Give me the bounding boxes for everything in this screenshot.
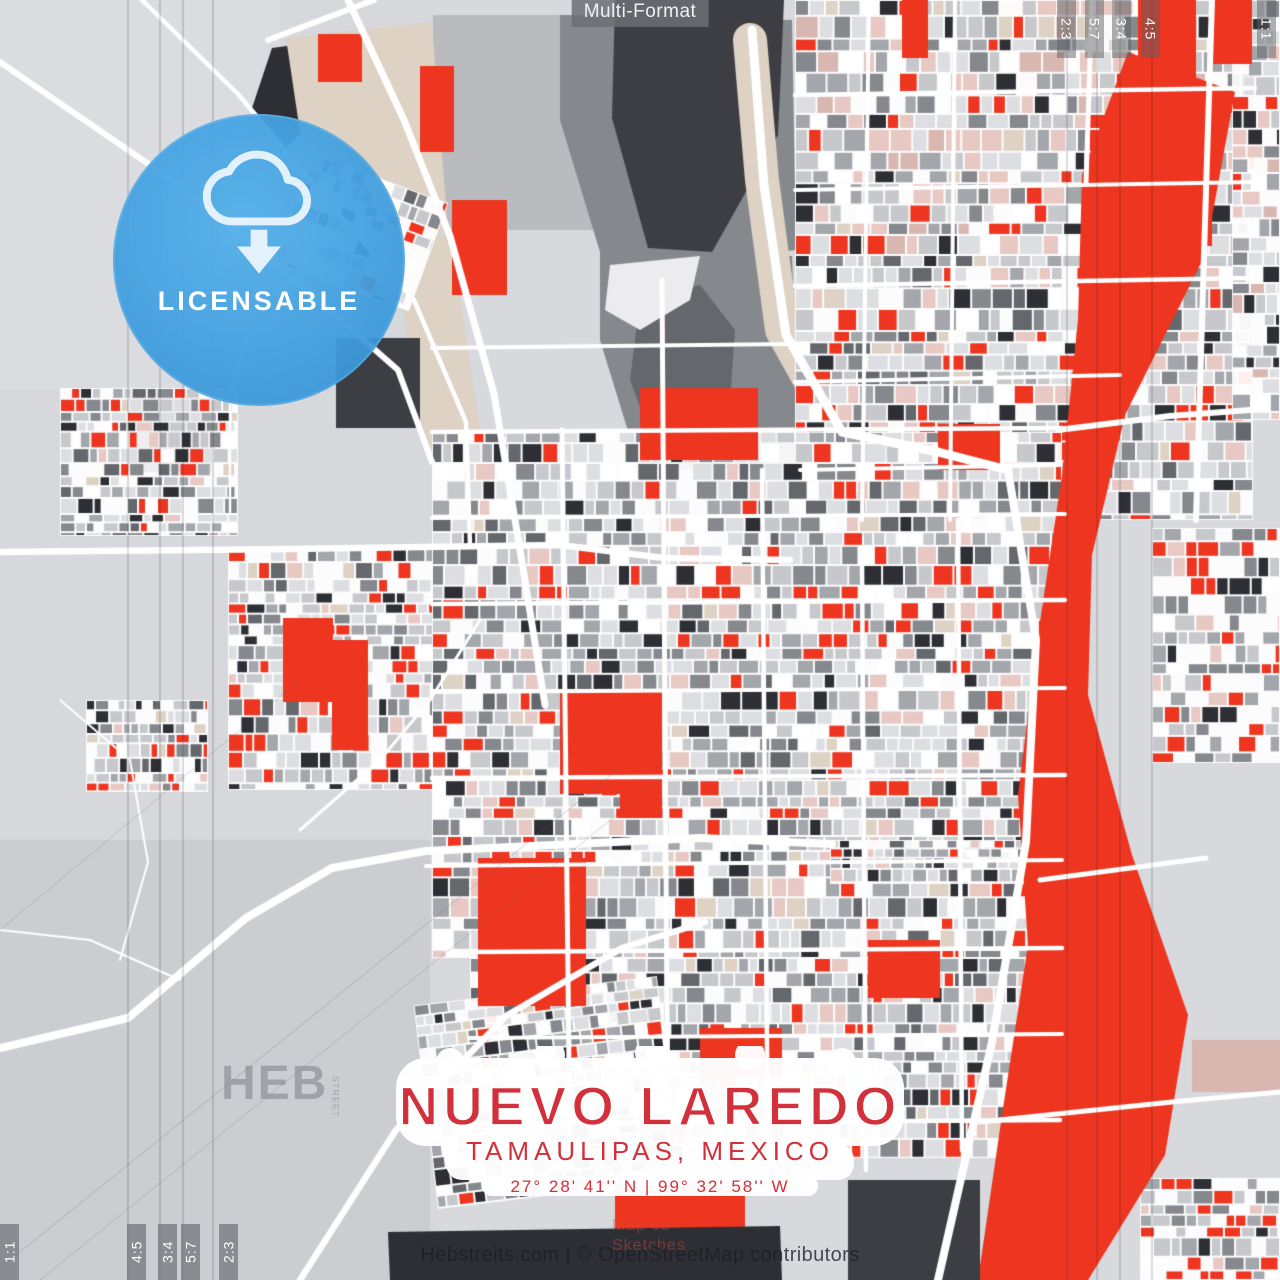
licensable-badge: LICENSABLE: [113, 114, 405, 406]
coordinates-label: 27° 28' 41'' N | 99° 32' 58'' W: [510, 1177, 789, 1196]
crop-mark-5-7-top: 5:7: [1085, 0, 1104, 58]
region-subtitle: TAMAULIPAS, MEXICO: [466, 1136, 834, 1166]
tiled-watermark-line1: Map co: [612, 1216, 686, 1236]
crop-mark-5-7: 5:7: [181, 1224, 200, 1280]
crop-mark-3-4-top: 3:4: [1112, 0, 1131, 58]
attribution-text: Hebstreits.com | © OpenStreetMap contrib…: [420, 1244, 859, 1267]
badge-label: LICENSABLE: [158, 286, 361, 317]
format-label: Multi-Format: [572, 0, 709, 27]
map-poster: 1:1 4:5 3:4 5:7 2:3 2:3 5:7 3:4 4:5 1:1 …: [0, 0, 1280, 1280]
crop-mark-1-1: 1:1: [0, 1224, 19, 1280]
brand-watermark: HEB STREET: [221, 1060, 340, 1118]
cloud-download-icon: [195, 142, 323, 282]
crop-mark-2-3: 2:3: [219, 1224, 238, 1280]
city-title: NUEVO LAREDO: [398, 1075, 901, 1137]
brand-watermark-small: STREET: [330, 1076, 340, 1118]
crop-mark-3-4: 3:4: [158, 1224, 177, 1280]
crop-mark-4-5: 4:5: [127, 1224, 146, 1280]
title-block: NUEVO LAREDO TAMAULIPAS, MEXICO 27° 28' …: [390, 1046, 910, 1200]
crop-mark-1-1-top: 1:1: [1257, 0, 1276, 58]
crop-mark-2-3-top: 2:3: [1057, 0, 1076, 58]
brand-watermark-main: HEB: [221, 1060, 328, 1108]
crop-mark-4-5-top: 4:5: [1141, 0, 1160, 58]
